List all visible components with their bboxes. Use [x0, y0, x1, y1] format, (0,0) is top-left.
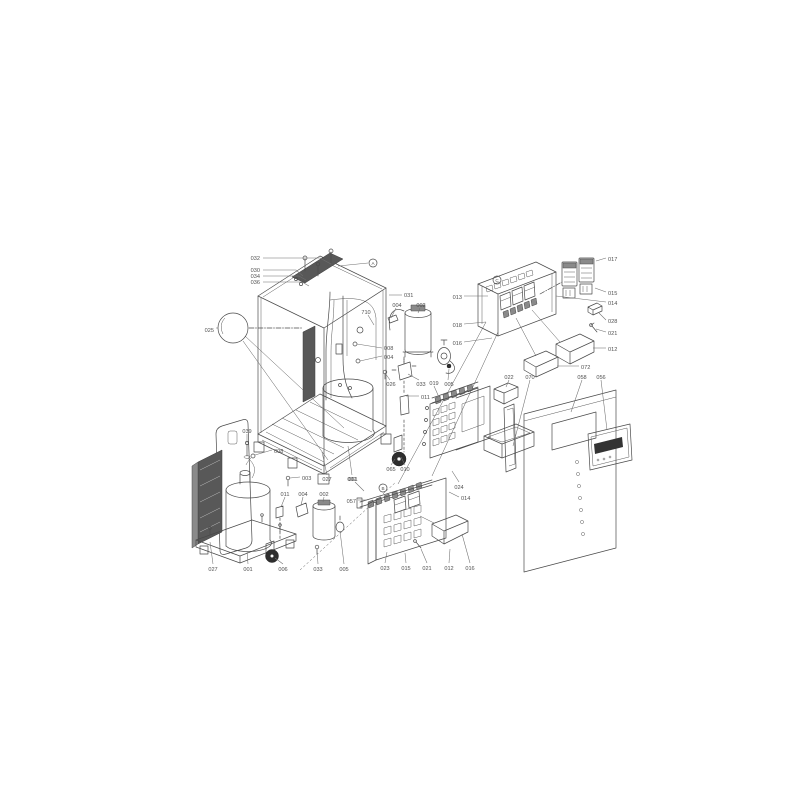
part-callout-002: 002: [416, 303, 425, 309]
accumulator-assembly: [383, 305, 454, 452]
part-callout-004: 004: [392, 303, 401, 309]
part-callout-026: 026: [386, 382, 395, 388]
part-callout-005: 005: [339, 567, 348, 573]
leader-line: [449, 549, 450, 563]
leader-line: [556, 296, 606, 302]
leader-line: [596, 258, 606, 261]
part-callout-004: 004: [384, 355, 393, 361]
part-callout-012: 012: [608, 347, 617, 353]
exploded-view-drawing: 0320300340360250317100040020080040260330…: [0, 0, 800, 800]
leader-line: [601, 380, 607, 430]
leader-line: [464, 338, 492, 342]
part-callout-021: 021: [422, 566, 431, 572]
leader-line: [464, 322, 486, 324]
leader-line: [301, 497, 303, 505]
compressor-assembly: [192, 420, 396, 571]
leader-line: [595, 288, 606, 292]
leader-line: [596, 329, 606, 332]
leader-line: [255, 450, 272, 455]
leader-line: [462, 534, 470, 563]
part-callout-013: 013: [453, 295, 462, 301]
part-callout-018: 018: [453, 323, 462, 329]
view-marker-letter-B: B: [381, 486, 384, 491]
panel-screw-holes: [575, 460, 584, 535]
part-callout-033: 033: [416, 382, 425, 388]
part-callout-027: 027: [322, 477, 331, 483]
part-callout-072: 072: [581, 365, 590, 371]
leader-line: [405, 553, 406, 563]
view-marker-letter-A: A: [371, 261, 375, 266]
leader-line: [368, 315, 374, 325]
leader-line: [360, 356, 382, 361]
part-callout-036: 036: [251, 280, 260, 286]
view-marker-letter-C: C: [495, 278, 499, 283]
leader-line: [421, 549, 427, 563]
part-callout-031: 031: [404, 293, 413, 299]
part-callout-021: 021: [608, 331, 617, 337]
view-markers-layer: ACB: [338, 259, 501, 492]
part-callout-019: 019: [429, 381, 438, 387]
part-callout-016: 016: [453, 341, 462, 347]
part-callout-065: 065: [386, 467, 395, 473]
part-callout-003: 003: [302, 476, 311, 482]
leader-line: [355, 482, 364, 491]
leader-line: [452, 471, 459, 482]
part-callout-039: 039: [242, 429, 251, 435]
controller-display-unit: [588, 424, 632, 470]
part-callout-012: 012: [444, 566, 453, 572]
part-callout-015: 015: [401, 566, 410, 572]
leader-line: [317, 549, 318, 564]
part-callout-015: 015: [608, 291, 617, 297]
part-callout-028: 028: [608, 319, 617, 325]
part-callout-023: 023: [380, 566, 389, 572]
part-callout-011: 011: [421, 395, 430, 401]
part-callout-033: 033: [313, 567, 322, 573]
leader-line: [340, 531, 344, 564]
lower-plate-assembly: [357, 478, 468, 564]
leader-line: [599, 313, 606, 320]
part-callout-022: 022: [504, 375, 513, 381]
leader-line: [281, 497, 285, 507]
part-callout-061: 061: [348, 477, 357, 483]
part-callout-027: 027: [208, 567, 217, 573]
diagram-canvas: 0320300340360250317100040020080040260330…: [0, 0, 800, 800]
part-callout-008: 008: [384, 346, 393, 352]
terminal-plate-assembly: [423, 382, 535, 472]
part-callout-056: 056: [596, 375, 605, 381]
marker-leader-line: [338, 263, 368, 266]
leader-line: [449, 492, 459, 497]
part-callout-058: 058: [577, 375, 586, 381]
leader-line: [448, 369, 449, 380]
control-box-assembly: [398, 258, 602, 484]
part-callout-014: 014: [608, 301, 617, 307]
part-callout-057: 057: [347, 499, 356, 505]
part-callout-032: 032: [251, 256, 260, 262]
part-callout-024: 024: [454, 485, 463, 491]
part-callout-710: 710: [361, 310, 370, 316]
part-callout-010: 010: [400, 467, 409, 473]
leader-line: [385, 552, 387, 563]
part-callout-017: 017: [608, 257, 617, 263]
part-callout-005: 005: [444, 382, 453, 388]
part-callout-004: 004: [298, 492, 307, 498]
part-callout-025: 025: [205, 328, 214, 334]
relay-modules: [562, 258, 594, 298]
part-callout-070: 070: [525, 375, 534, 381]
part-callout-002: 002: [319, 492, 328, 498]
leader-line: [357, 344, 382, 348]
part-callout-008: 008: [274, 449, 283, 455]
side-panel-assembly: [524, 390, 632, 572]
leader-line: [348, 446, 352, 475]
leader-line: [290, 477, 300, 478]
part-callout-014: 014: [461, 496, 470, 502]
leader-line: [434, 386, 438, 395]
part-callout-001: 001: [243, 567, 252, 573]
part-callout-006: 006: [278, 567, 287, 573]
part-callout-016: 016: [465, 566, 474, 572]
part-callout-011: 011: [281, 492, 290, 498]
